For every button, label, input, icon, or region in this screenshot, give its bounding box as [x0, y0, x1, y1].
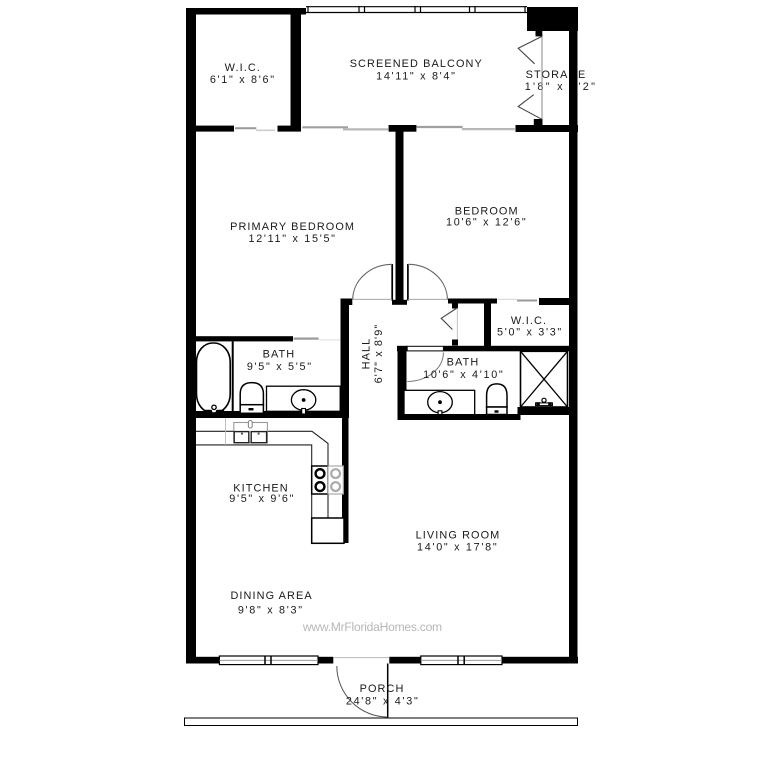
svg-text:6'7" x 8'9": 6'7" x 8'9"	[373, 324, 385, 384]
svg-text:14'0" x 17'8": 14'0" x 17'8"	[417, 542, 498, 554]
svg-text:W.I.C.: W.I.C.	[511, 315, 547, 327]
svg-text:HALL: HALL	[361, 338, 373, 370]
svg-text:BATH: BATH	[263, 349, 296, 361]
svg-text:BATH: BATH	[447, 357, 480, 369]
svg-text:1'8" x 7'2": 1'8" x 7'2"	[525, 81, 598, 93]
svg-text:SCREENED BALCONY: SCREENED BALCONY	[350, 58, 483, 70]
svg-text:24'8" x 4'3": 24'8" x 4'3"	[346, 695, 420, 707]
svg-text:10'6" x 12'6": 10'6" x 12'6"	[446, 216, 527, 228]
svg-text:5'0" x 3'3": 5'0" x 3'3"	[497, 327, 563, 339]
svg-text:10'6" x 4'10": 10'6" x 4'10"	[423, 369, 504, 381]
svg-text:9'5" x 5'5": 9'5" x 5'5"	[247, 361, 313, 373]
svg-text:14'11" x 8'4": 14'11" x 8'4"	[376, 71, 457, 83]
svg-text:6'1" x 8'6": 6'1" x 8'6"	[210, 74, 276, 86]
svg-text:www.MrFloridaHomes.com: www.MrFloridaHomes.com	[302, 620, 442, 634]
svg-text:12'11" x 15'5": 12'11" x 15'5"	[248, 233, 336, 245]
svg-text:W.I.C.: W.I.C.	[225, 62, 261, 74]
svg-text:LIVING ROOM: LIVING ROOM	[416, 529, 501, 541]
svg-text:9'8" x 8'3": 9'8" x 8'3"	[238, 605, 304, 617]
svg-text:9'5" x 9'6": 9'5" x 9'6"	[229, 493, 295, 505]
svg-text:DINING AREA: DINING AREA	[230, 590, 312, 602]
svg-text:PRIMARY BEDROOM: PRIMARY BEDROOM	[230, 221, 355, 233]
svg-text:PORCH: PORCH	[360, 683, 405, 695]
